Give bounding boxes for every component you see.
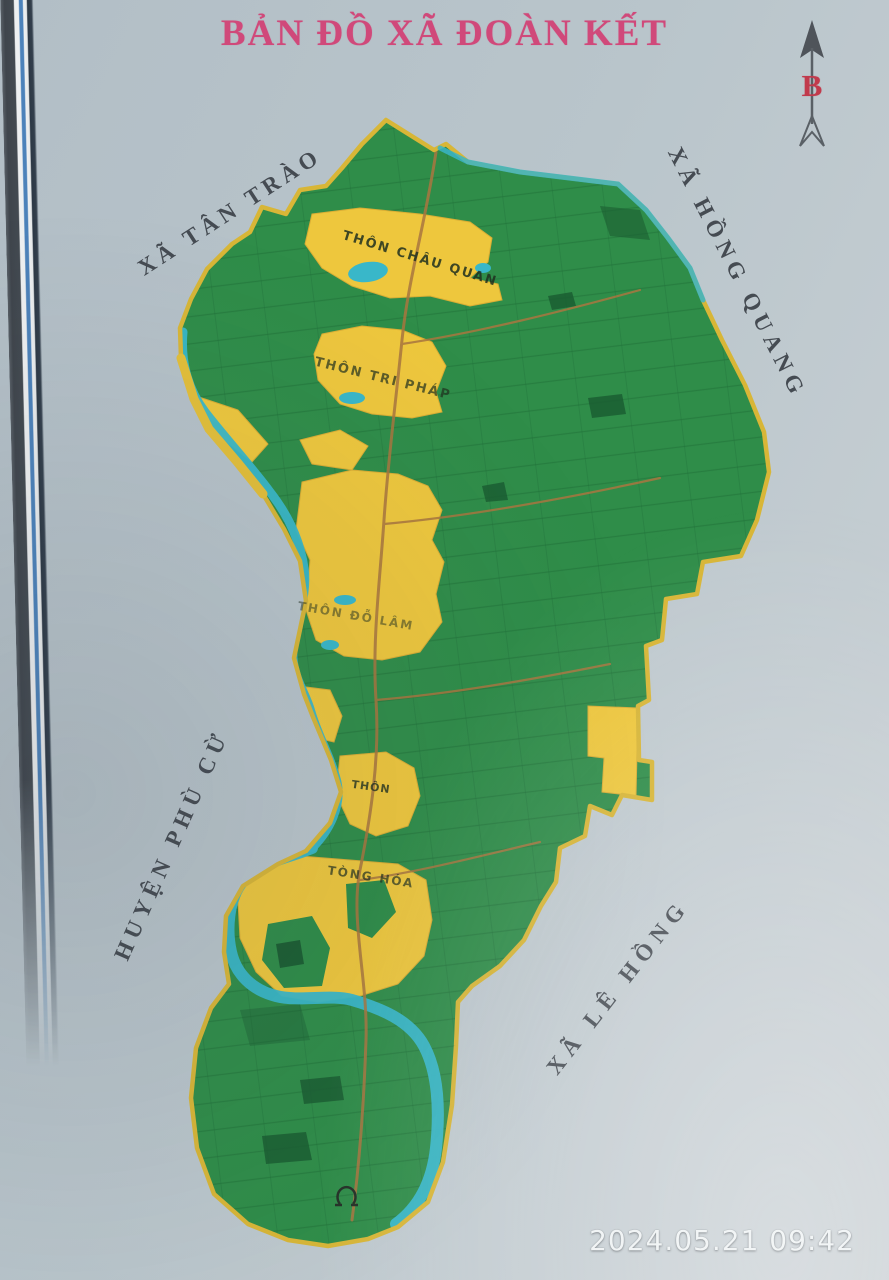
- north-label: B: [770, 68, 854, 104]
- commune-map: [0, 0, 889, 1280]
- compass: B: [770, 12, 854, 152]
- camera-timestamp: 2024.05.21 09:42: [589, 1224, 855, 1257]
- map-photo: BẢN ĐỒ XÃ ĐOÀN KẾT: [0, 0, 889, 1280]
